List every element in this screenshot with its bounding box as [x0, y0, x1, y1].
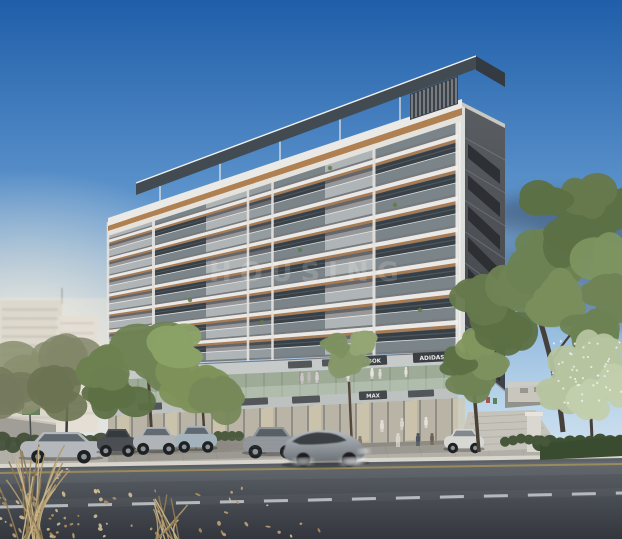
shop-sign-max: MAX	[359, 390, 387, 400]
scene-canvas: REEBOK ADIDAS MAX HOUSING	[0, 0, 622, 539]
watermark: HOUSING	[209, 257, 407, 288]
shop-sign-max-label: MAX	[366, 393, 381, 400]
architectural-render: REEBOK ADIDAS MAX HOUSING	[0, 0, 622, 539]
shop-sign-adidas-label: ADIDAS	[419, 355, 444, 362]
